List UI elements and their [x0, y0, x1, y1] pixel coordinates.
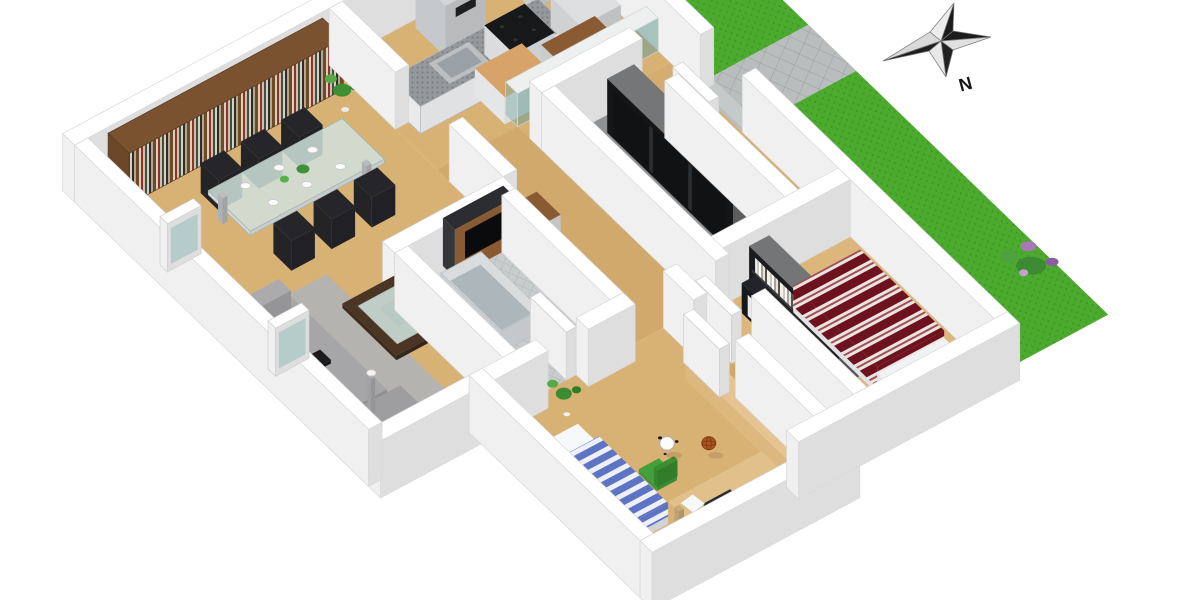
plant-kids	[547, 380, 558, 388]
wall-southwest	[369, 422, 382, 486]
closet-door-seam	[649, 125, 653, 174]
plant-pot-dining	[341, 107, 349, 112]
floorplan-3d-render: N	[0, 0, 1200, 600]
kitchen-faucet	[466, 43, 469, 47]
flower-bush-leaves	[1000, 251, 1018, 263]
plant-dining	[325, 74, 337, 83]
plate	[302, 182, 312, 188]
plate	[335, 164, 345, 170]
kids-door-leaf	[719, 344, 729, 397]
ball-shadow	[708, 452, 723, 458]
stove-burner	[518, 15, 522, 18]
wall-bedroom-southeast	[787, 430, 799, 499]
plant-pot-kids	[563, 412, 570, 416]
plate	[268, 200, 278, 206]
stove-burner	[513, 38, 517, 41]
closet-door-seam	[688, 163, 692, 212]
stove-burner	[500, 25, 504, 28]
window-living-leaf	[268, 321, 276, 376]
wall-northwest	[63, 134, 75, 203]
plate	[240, 183, 250, 189]
floorplan-viewport: N	[0, 0, 1200, 600]
table-leg	[218, 194, 223, 224]
ball-shadow	[666, 452, 682, 459]
compass-label: N	[957, 73, 975, 96]
plant-dining	[333, 84, 351, 97]
plate	[307, 147, 317, 153]
basketball	[702, 437, 716, 450]
bathroom-door-leaf	[566, 327, 576, 380]
stove-burner	[532, 28, 536, 31]
floor-lamp-shade	[367, 370, 376, 376]
soccer-ball-spot	[664, 453, 667, 455]
plant-kids	[556, 388, 572, 400]
flower-bush-blooms	[1046, 258, 1059, 266]
wall-kitchen-dining	[395, 65, 408, 129]
soccer-ball-spot	[658, 436, 662, 439]
soccer-ball	[660, 437, 674, 451]
wall-bathroom-south-b	[576, 318, 588, 387]
soccer-ball-spot	[675, 440, 679, 443]
table-centerpiece-plant	[280, 176, 289, 183]
kids-chair-back	[654, 467, 658, 487]
flower-bush-blooms	[1019, 269, 1028, 276]
plate	[274, 165, 284, 171]
table-leg	[223, 196, 228, 225]
table-centerpiece-plant	[297, 164, 310, 173]
flower-bush-blooms	[1021, 241, 1037, 251]
wall-closet-north	[530, 81, 542, 150]
window-dining-leaf	[160, 217, 168, 272]
plant-kids	[572, 386, 581, 393]
